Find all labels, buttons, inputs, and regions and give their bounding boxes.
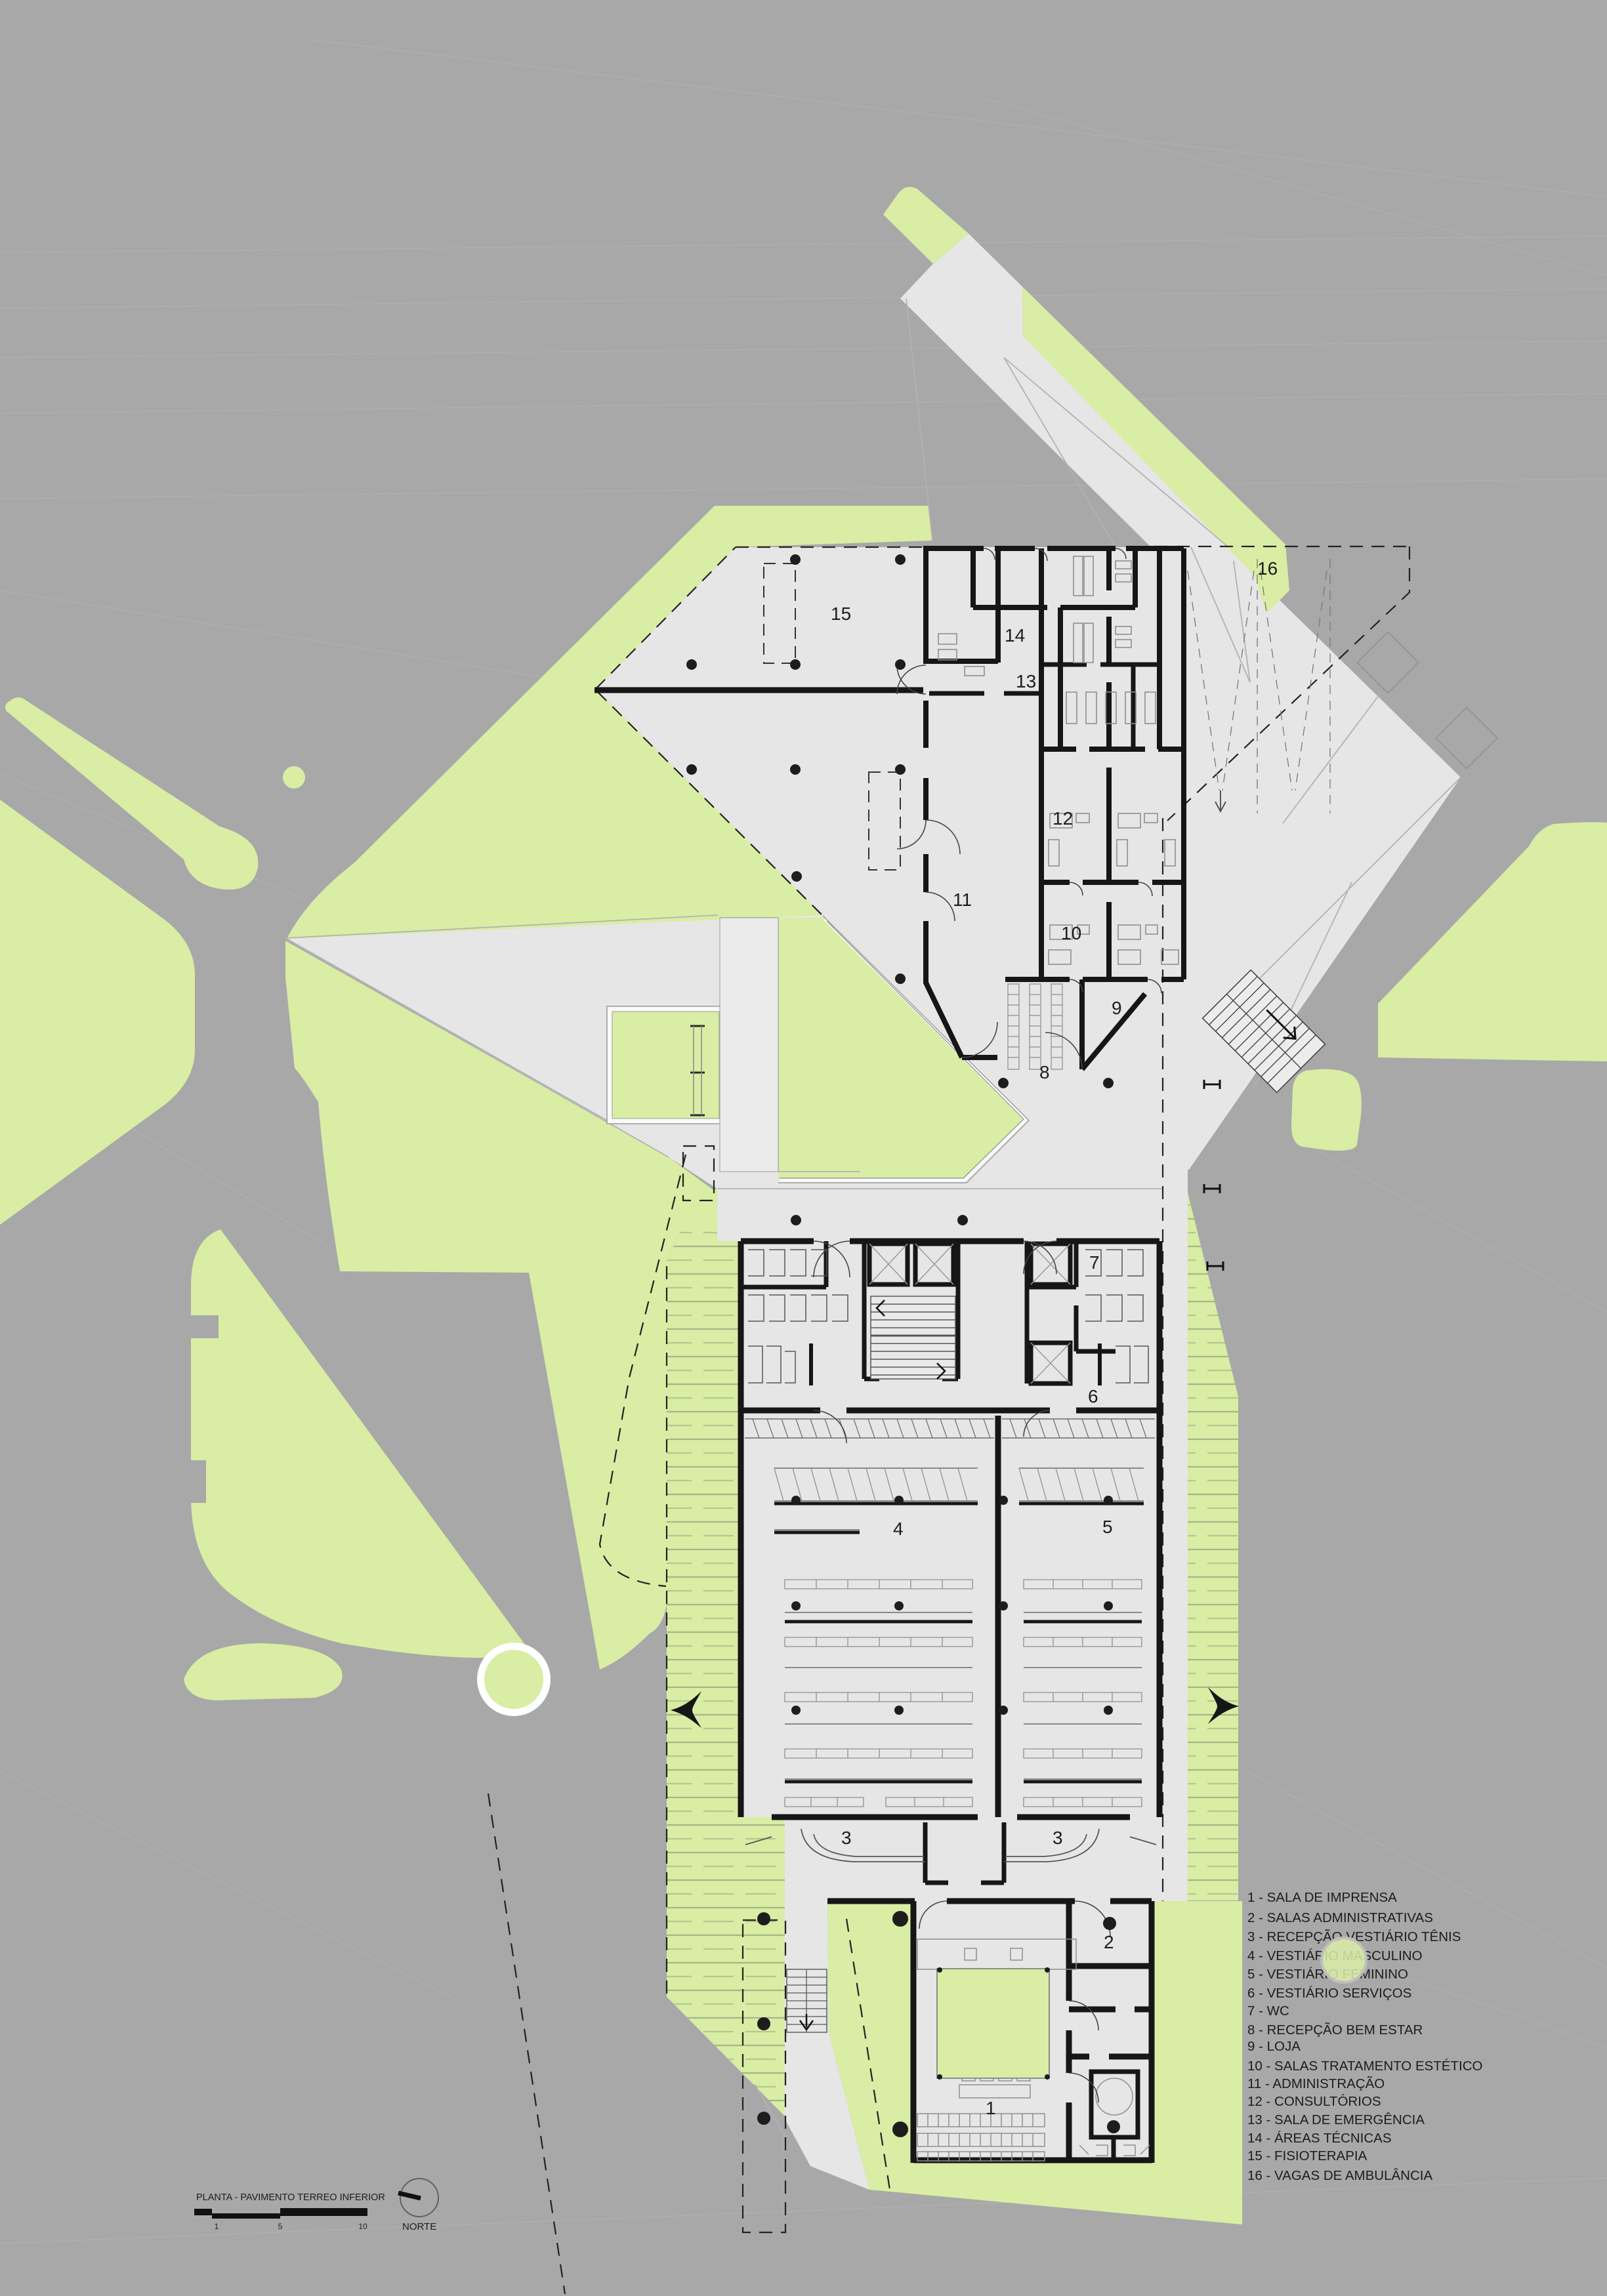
- svg-text:NORTE: NORTE: [402, 2221, 436, 2232]
- svg-text:7: 7: [1089, 1252, 1100, 1273]
- svg-text:4: 4: [893, 1519, 904, 1539]
- svg-text:3: 3: [841, 1828, 852, 1848]
- svg-text:5: 5: [278, 2222, 283, 2231]
- svg-text:15 - FISIOTERAPIA: 15 - FISIOTERAPIA: [1247, 2148, 1367, 2163]
- svg-text:3: 3: [1053, 1828, 1063, 1848]
- svg-text:11 - ADMINISTRAÇÃO: 11 - ADMINISTRAÇÃO: [1247, 2076, 1385, 2091]
- svg-text:7 - WC: 7 - WC: [1247, 2003, 1289, 2019]
- svg-text:16 - VAGAS DE AMBULÂNCIA: 16 - VAGAS DE AMBULÂNCIA: [1247, 2168, 1432, 2183]
- svg-text:1 - SALA DE IMPRENSA: 1 - SALA DE IMPRENSA: [1247, 1890, 1397, 1905]
- svg-text:9: 9: [1112, 998, 1122, 1018]
- svg-text:1: 1: [986, 2098, 996, 2118]
- svg-text:8: 8: [1039, 1062, 1050, 1082]
- svg-text:10: 10: [358, 2222, 367, 2231]
- svg-text:10 - SALAS TRATAMENTO ESTÉTICO: 10 - SALAS TRATAMENTO ESTÉTICO: [1247, 2059, 1482, 2074]
- svg-text:2 - SALAS ADMINISTRATIVAS: 2 - SALAS ADMINISTRATIVAS: [1247, 1910, 1433, 1925]
- svg-text:8 - RECEPÇÃO BEM ESTAR: 8 - RECEPÇÃO BEM ESTAR: [1247, 2022, 1423, 2038]
- svg-text:14 - ÁREAS TÉCNICAS: 14 - ÁREAS TÉCNICAS: [1247, 2131, 1392, 2146]
- svg-text:1: 1: [215, 2222, 219, 2231]
- svg-text:9 - LOJA: 9 - LOJA: [1247, 2039, 1301, 2054]
- svg-text:14: 14: [1005, 625, 1025, 646]
- svg-text:15: 15: [831, 604, 851, 624]
- svg-text:16: 16: [1257, 558, 1278, 579]
- svg-text:11: 11: [953, 890, 972, 910]
- svg-text:13 - SALA DE EMERGÊNCIA: 13 - SALA DE EMERGÊNCIA: [1247, 2112, 1425, 2127]
- svg-text:PLANTA - PAVIMENTO TERREO INFE: PLANTA - PAVIMENTO TERREO INFERIOR: [196, 2192, 385, 2203]
- svg-text:13: 13: [1016, 671, 1036, 691]
- svg-text:12 - CONSULTÓRIOS: 12 - CONSULTÓRIOS: [1247, 2094, 1381, 2109]
- svg-text:10: 10: [1061, 923, 1081, 943]
- svg-text:6: 6: [1088, 1386, 1098, 1406]
- svg-text:6 - VESTIÁRIO SERVIÇOS: 6 - VESTIÁRIO SERVIÇOS: [1247, 1986, 1411, 2001]
- svg-text:12: 12: [1053, 808, 1073, 829]
- svg-text:5: 5: [1102, 1517, 1113, 1537]
- svg-text:2: 2: [1104, 1932, 1114, 1952]
